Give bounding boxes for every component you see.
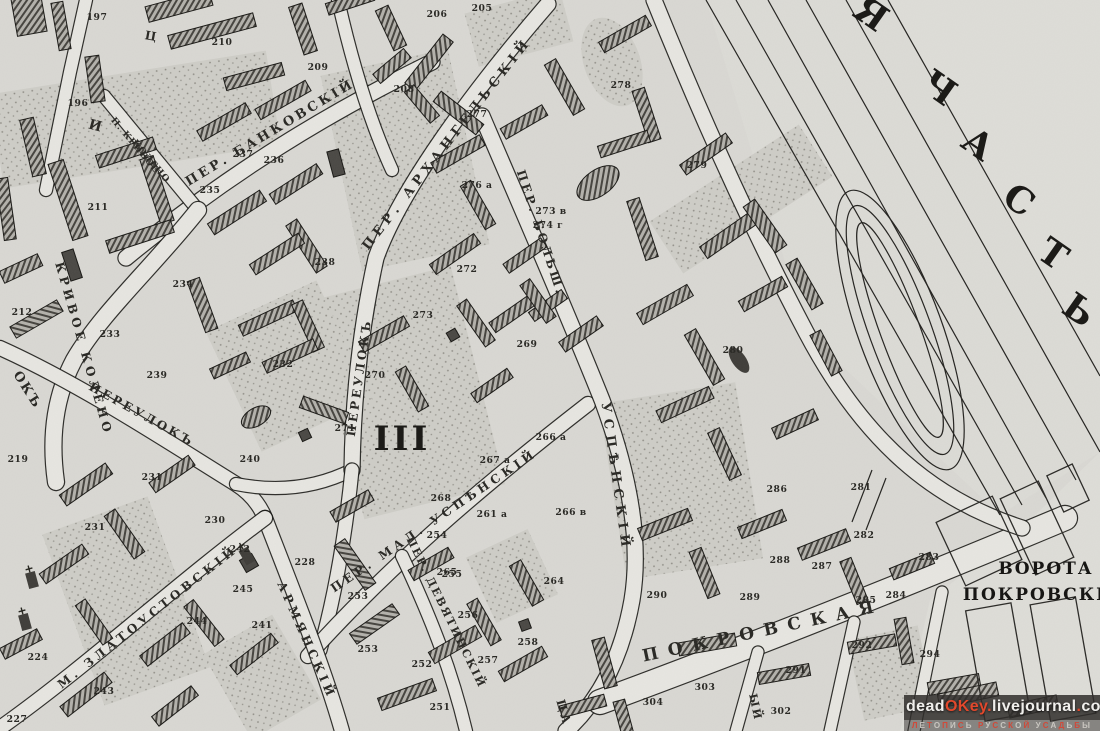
building-number: 210 [212,37,233,48]
building-number: 277 [467,109,488,120]
building-number: 264 [544,576,565,587]
building-number: 268 [431,493,452,504]
building-number: 227 [7,714,28,725]
building-number: 304 [643,697,664,708]
building-number: 233 [100,329,121,340]
building-number: 196 [68,98,89,109]
watermark-url-part: OKey [945,698,987,715]
building-number: 240 [240,454,261,465]
building-number: 231 [142,472,163,483]
building-number: 242 [230,544,251,555]
building-number: 237 [233,149,254,160]
building-number: 235 [200,185,221,196]
building-number: 243 [94,686,115,697]
map-canvas: ПЕР. БАНКОВСКІЙП. КРИВОЕКОЛЕНОКРИВОЕ КОЛ… [0,0,1100,731]
building-number: 241 [252,620,273,631]
watermark-url-part: dead [906,698,945,715]
building-number: 211 [88,202,109,213]
building-number: 269 [517,339,538,350]
watermark-subtitle-char: А [1050,721,1058,730]
building-number: 276 а [462,180,493,191]
building-number: 251 [430,702,451,713]
watermark-url-part: com [1081,698,1100,715]
building-number: 219 [8,454,29,465]
building-number: 206 [427,9,448,20]
watermark-subtitle-char: Е [920,721,927,730]
building-number: 267 а [480,455,511,466]
building-number: 273 [413,310,434,321]
watermark-subtitle-char: И [950,721,958,730]
building-number: 289 [740,592,761,603]
building-number: 271 [335,423,356,434]
watermark-subtitle-char: Ь [966,721,974,730]
historic-city-map: ПЕР. БАНКОВСКІЙП. КРИВОЕКОЛЕНОКРИВОЕ КОЛ… [0,0,1100,731]
building-number: 245 [233,584,254,595]
building-number: 278 [611,80,632,91]
building-number: 285 [856,595,877,606]
watermark-subtitle-char: С [958,721,966,730]
building-number: 261 а [477,509,508,520]
building-number: 257 [478,655,499,666]
building-number: 283 [919,552,940,563]
building-number: 287 [812,561,833,572]
building-number: 238 [315,257,336,268]
building-number: 212 [12,307,33,318]
building-number: 302 [771,706,792,717]
building-number: 258 [518,637,539,648]
building-number: 288 [770,555,791,566]
building-number: 266 а [536,432,567,443]
building-number: 266 в [555,507,586,518]
watermark-subtitle-char: Л [912,721,920,730]
building-number: 256 [458,610,479,621]
pokrovskie-gates-label: ВОРОТА [998,559,1093,579]
building-number: 254 [427,530,448,541]
watermark-subtitle-char: Б [1074,721,1082,730]
building-number: 252 [412,659,433,670]
building-number: 208 [394,84,415,95]
building-number: 230 [205,515,226,526]
watermark-url-text: deadOKey.livejournal.com [904,695,1100,720]
building-number: 282 [854,530,875,541]
pokrovskie-gates-label: ПОКРОВСКІЯ [963,585,1100,605]
building-number: 197 [87,12,108,23]
watermark-subtitle-char: У [1036,721,1043,730]
block-roman-numeral: III [374,419,431,459]
watermark-url-part: livejournal [992,698,1076,715]
watermark-subtitle-text: ЛЕТОПИСЬ РУССКОЙ УСАДЬБЫ [904,720,1100,731]
building-number: 281 [851,482,872,493]
building-number: 239 [147,370,168,381]
building-number: 284 [886,590,907,601]
building-number: 224 [28,652,49,663]
watermark-subtitle-char: С [1000,721,1008,730]
building-number: 253 [358,644,379,655]
building-number: 274 г [533,220,564,231]
building-number: 290 [647,590,668,601]
watermark-subtitle-char: Ы [1082,721,1092,730]
building-number: 232 [273,359,294,370]
watermark-subtitle-char: П [942,721,950,730]
building-number: 279 [687,160,708,171]
watermark: deadOKey.livejournal.com ЛЕТОПИСЬ РУССКО… [904,695,1100,731]
watermark-subtitle-char: Т [927,721,934,730]
building-number: 244 [187,616,208,627]
building-number: 303 [695,682,716,693]
building-number: 236 [264,155,285,166]
building-number: 231 [85,522,106,533]
building-number: 265 [437,567,458,578]
building-number: 294 [920,649,941,660]
building-number: 272 [457,264,478,275]
building-number: 270 [365,370,386,381]
building-number: 209 [308,62,329,73]
building-number: 292 [852,640,873,651]
building-number: 273 в [535,206,566,217]
building-number: 205 [472,3,493,14]
building-number: 280 [723,345,744,356]
building-block [11,0,47,36]
building-number: 291 [786,665,807,676]
building-number: 253 [348,591,369,602]
building-number: 286 [767,484,788,495]
watermark-subtitle-char: О [934,721,942,730]
building-number: 228 [295,557,316,568]
building-number: 234 [173,279,194,290]
